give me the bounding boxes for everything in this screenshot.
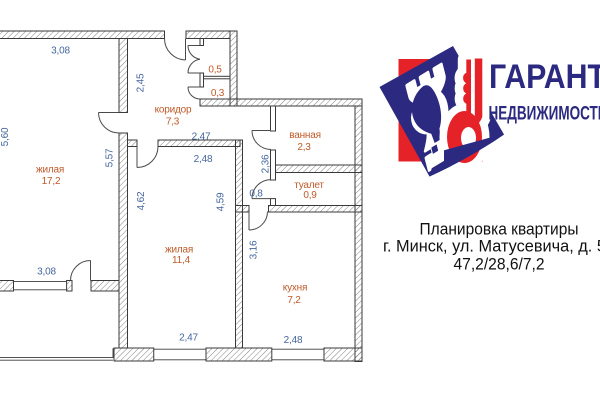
svg-text:3,08: 3,08	[37, 267, 56, 278]
svg-text:2,3: 2,3	[297, 142, 311, 153]
svg-text:7,2: 7,2	[287, 295, 301, 306]
svg-text:2,47: 2,47	[179, 333, 198, 344]
svg-text:7,3: 7,3	[166, 117, 180, 128]
svg-text:ГАРАНТ: ГАРАНТ	[489, 58, 600, 96]
svg-text:5,57: 5,57	[105, 148, 116, 167]
svg-text:2,47: 2,47	[192, 132, 211, 143]
svg-text:5,60: 5,60	[0, 127, 11, 146]
svg-text:0,5: 0,5	[208, 65, 222, 76]
svg-text:0,8: 0,8	[249, 189, 263, 200]
svg-text:47,2/28,6/7,2: 47,2/28,6/7,2	[454, 255, 545, 274]
svg-text:жилая: жилая	[165, 245, 193, 256]
svg-text:НЕДВИЖИМОСТЬ: НЕДВИЖИМОСТЬ	[489, 104, 600, 125]
svg-text:3,16: 3,16	[249, 240, 260, 259]
svg-text:г. Минск, ул. Матусевича, д. 5: г. Минск, ул. Матусевича, д. 52	[383, 237, 600, 256]
svg-text:11,4: 11,4	[172, 255, 191, 266]
svg-text:кухня: кухня	[283, 283, 307, 294]
svg-text:17,2: 17,2	[42, 176, 61, 187]
svg-text:жилая: жилая	[36, 165, 64, 176]
svg-text:2,45: 2,45	[136, 73, 147, 92]
svg-text:3,08: 3,08	[51, 46, 70, 57]
svg-text:ванная: ванная	[289, 130, 321, 141]
svg-text:2,48: 2,48	[194, 154, 213, 165]
svg-text:2,36: 2,36	[261, 154, 272, 173]
svg-text:2,48: 2,48	[284, 335, 303, 346]
svg-text:4,62: 4,62	[136, 191, 147, 210]
svg-text:коридор: коридор	[155, 105, 192, 116]
svg-text:0,9: 0,9	[303, 190, 317, 201]
svg-text:4,59: 4,59	[216, 192, 227, 211]
svg-text:0,3: 0,3	[211, 88, 225, 99]
